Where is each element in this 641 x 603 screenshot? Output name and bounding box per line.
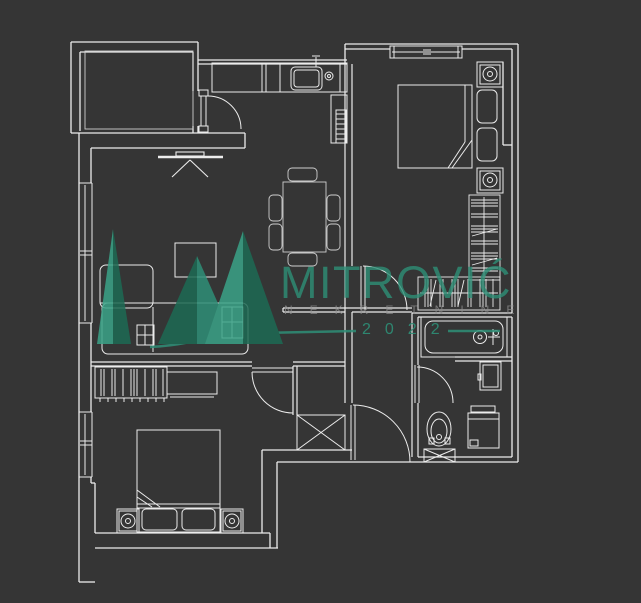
bedroom-bottom	[95, 367, 243, 533]
dining-set	[269, 168, 340, 266]
windows	[79, 46, 462, 477]
entry-room-lining	[85, 51, 193, 129]
ventilation-shaft	[297, 415, 345, 450]
tv-unit	[158, 152, 223, 177]
kitchen	[212, 56, 347, 143]
floor-plan-image: MITROVIĆ NEKRETNINE 2022	[0, 0, 641, 603]
wardrobes	[418, 195, 500, 310]
bedroom-top-bed	[398, 62, 503, 193]
bathroom	[421, 317, 507, 462]
floor-plan	[0, 0, 641, 603]
